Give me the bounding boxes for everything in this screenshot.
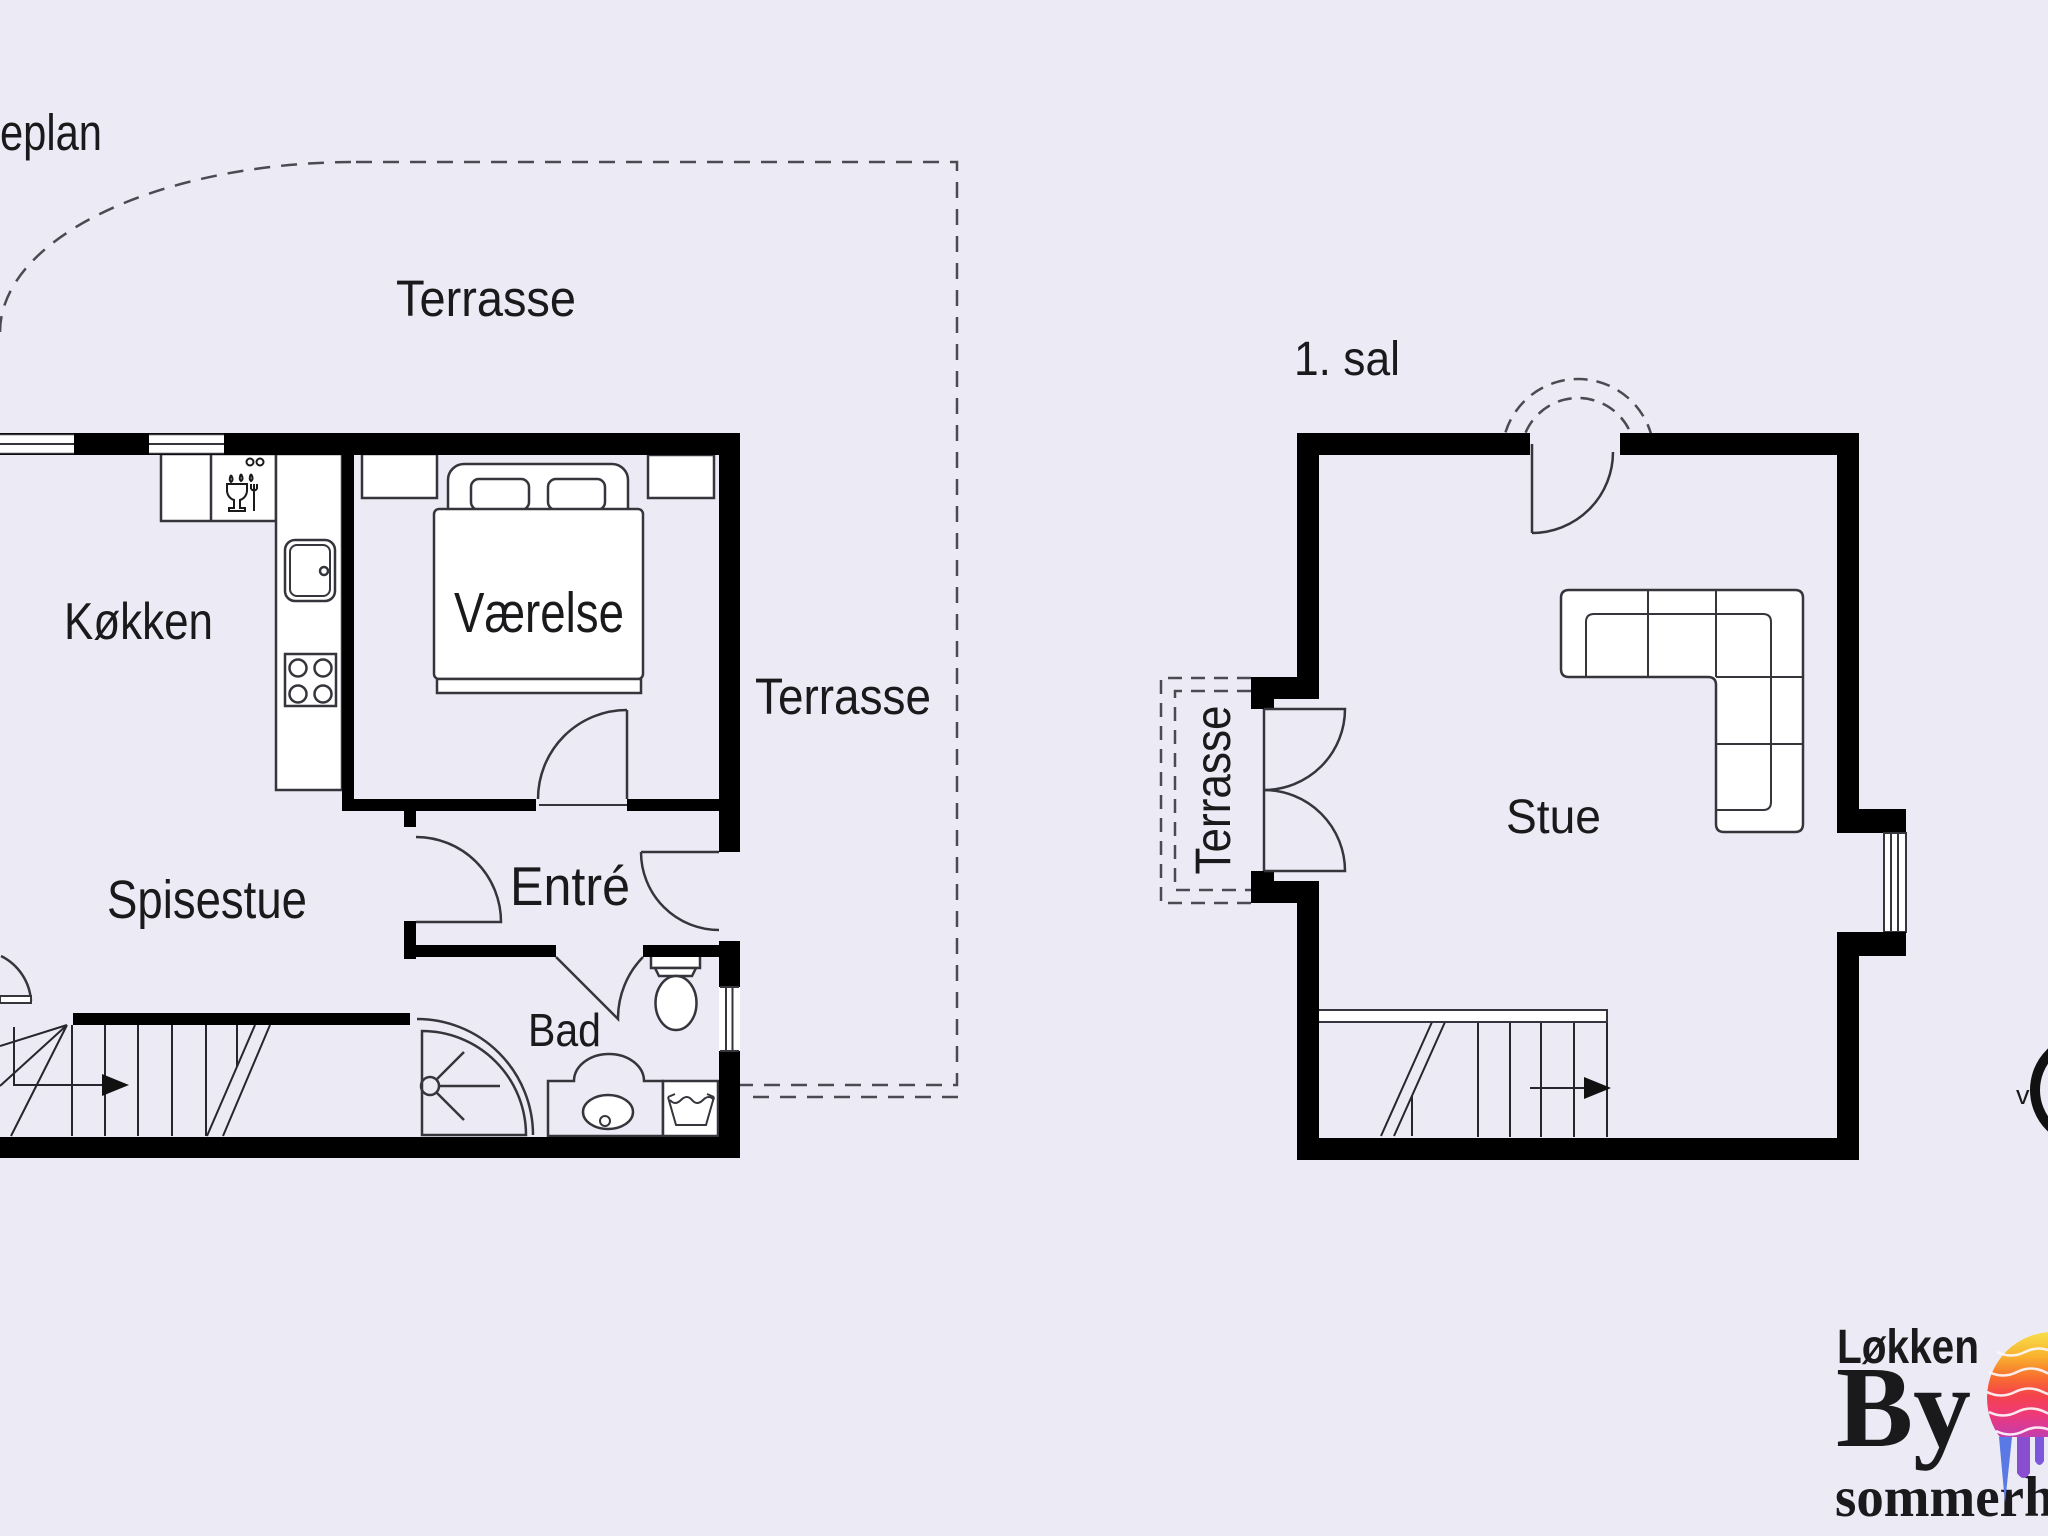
svg-text:1. sal: 1. sal (1294, 333, 1400, 386)
svg-text:Spisestue: Spisestue (107, 870, 307, 930)
svg-text:sommerhu: sommerhu (1835, 1466, 2048, 1529)
svg-text:Værelse: Værelse (454, 581, 624, 645)
svg-text:By: By (1836, 1344, 1971, 1471)
svg-text:Terrasse: Terrasse (755, 668, 931, 725)
svg-text:Terrasse: Terrasse (396, 270, 576, 327)
svg-text:Stue: Stue (1506, 791, 1601, 844)
svg-text:Terrasse: Terrasse (1185, 706, 1241, 875)
svg-text:Bad: Bad (528, 1004, 601, 1056)
svg-text:Entré: Entré (510, 855, 630, 917)
svg-text:eplan: eplan (0, 104, 102, 161)
svg-text:Køkken: Køkken (64, 593, 213, 651)
svg-text:v: v (2016, 1080, 2030, 1110)
